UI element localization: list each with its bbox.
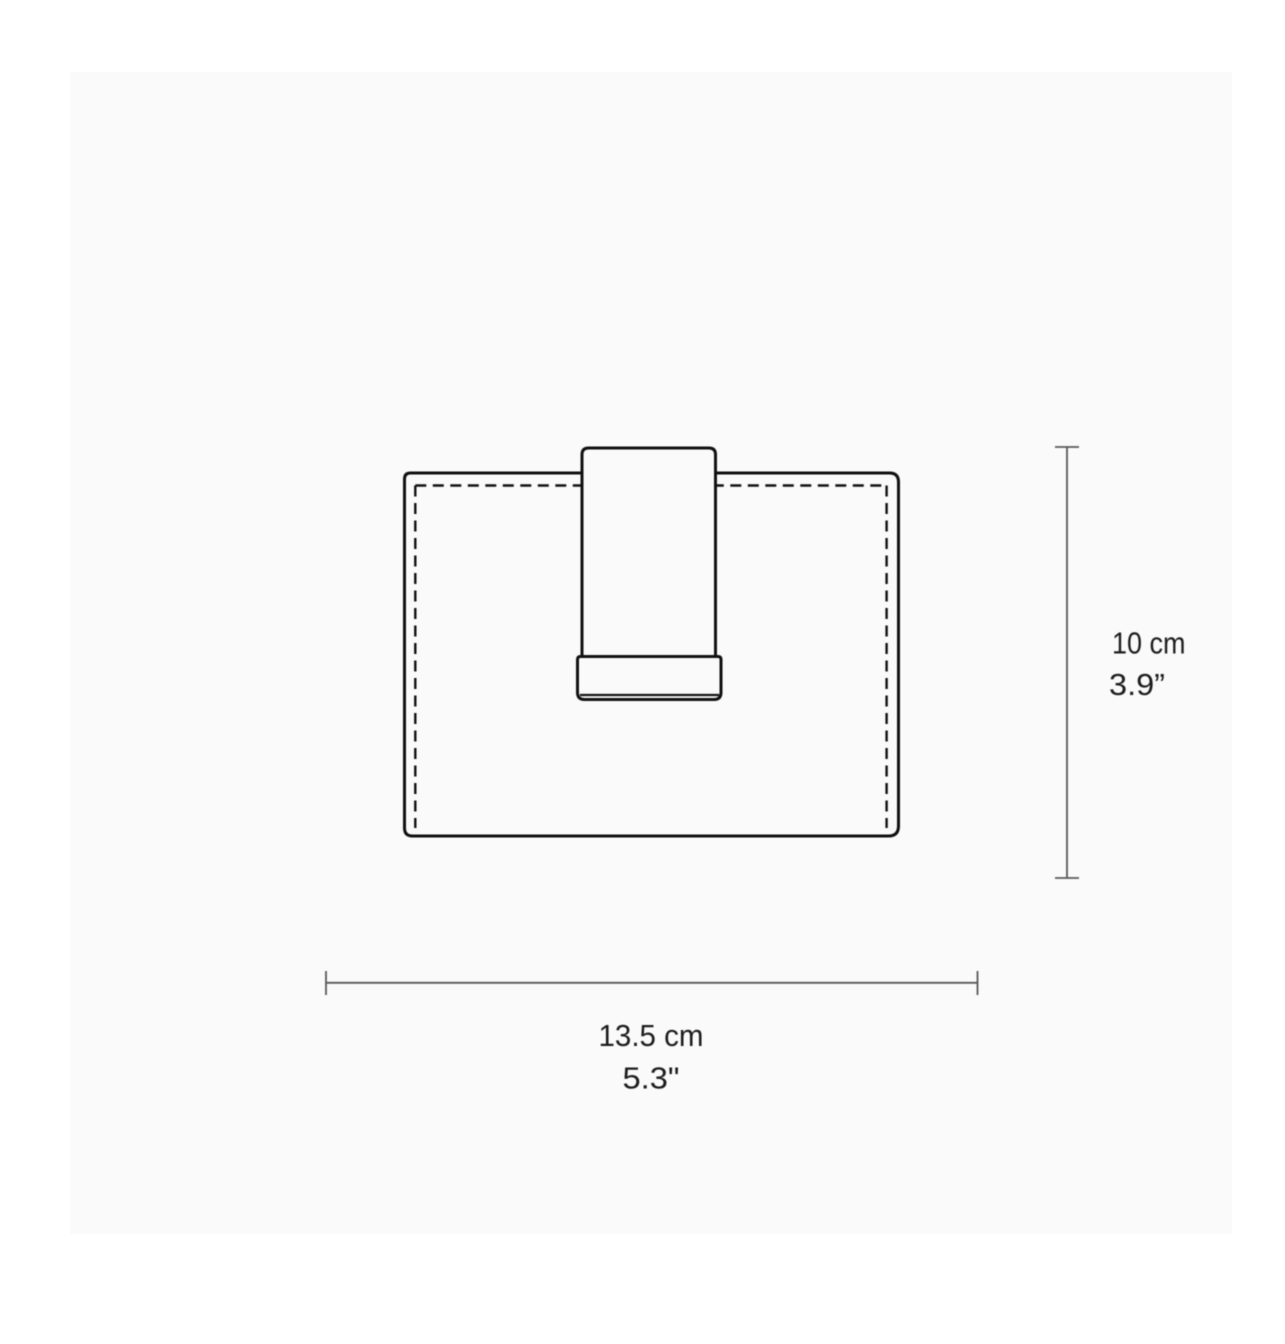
svg-text:13.5 cm: 13.5 cm bbox=[599, 1018, 704, 1053]
svg-text:3.9”: 3.9” bbox=[1109, 667, 1165, 702]
svg-text:5.3": 5.3" bbox=[623, 1061, 680, 1096]
svg-text:10 cm: 10 cm bbox=[1112, 626, 1186, 661]
